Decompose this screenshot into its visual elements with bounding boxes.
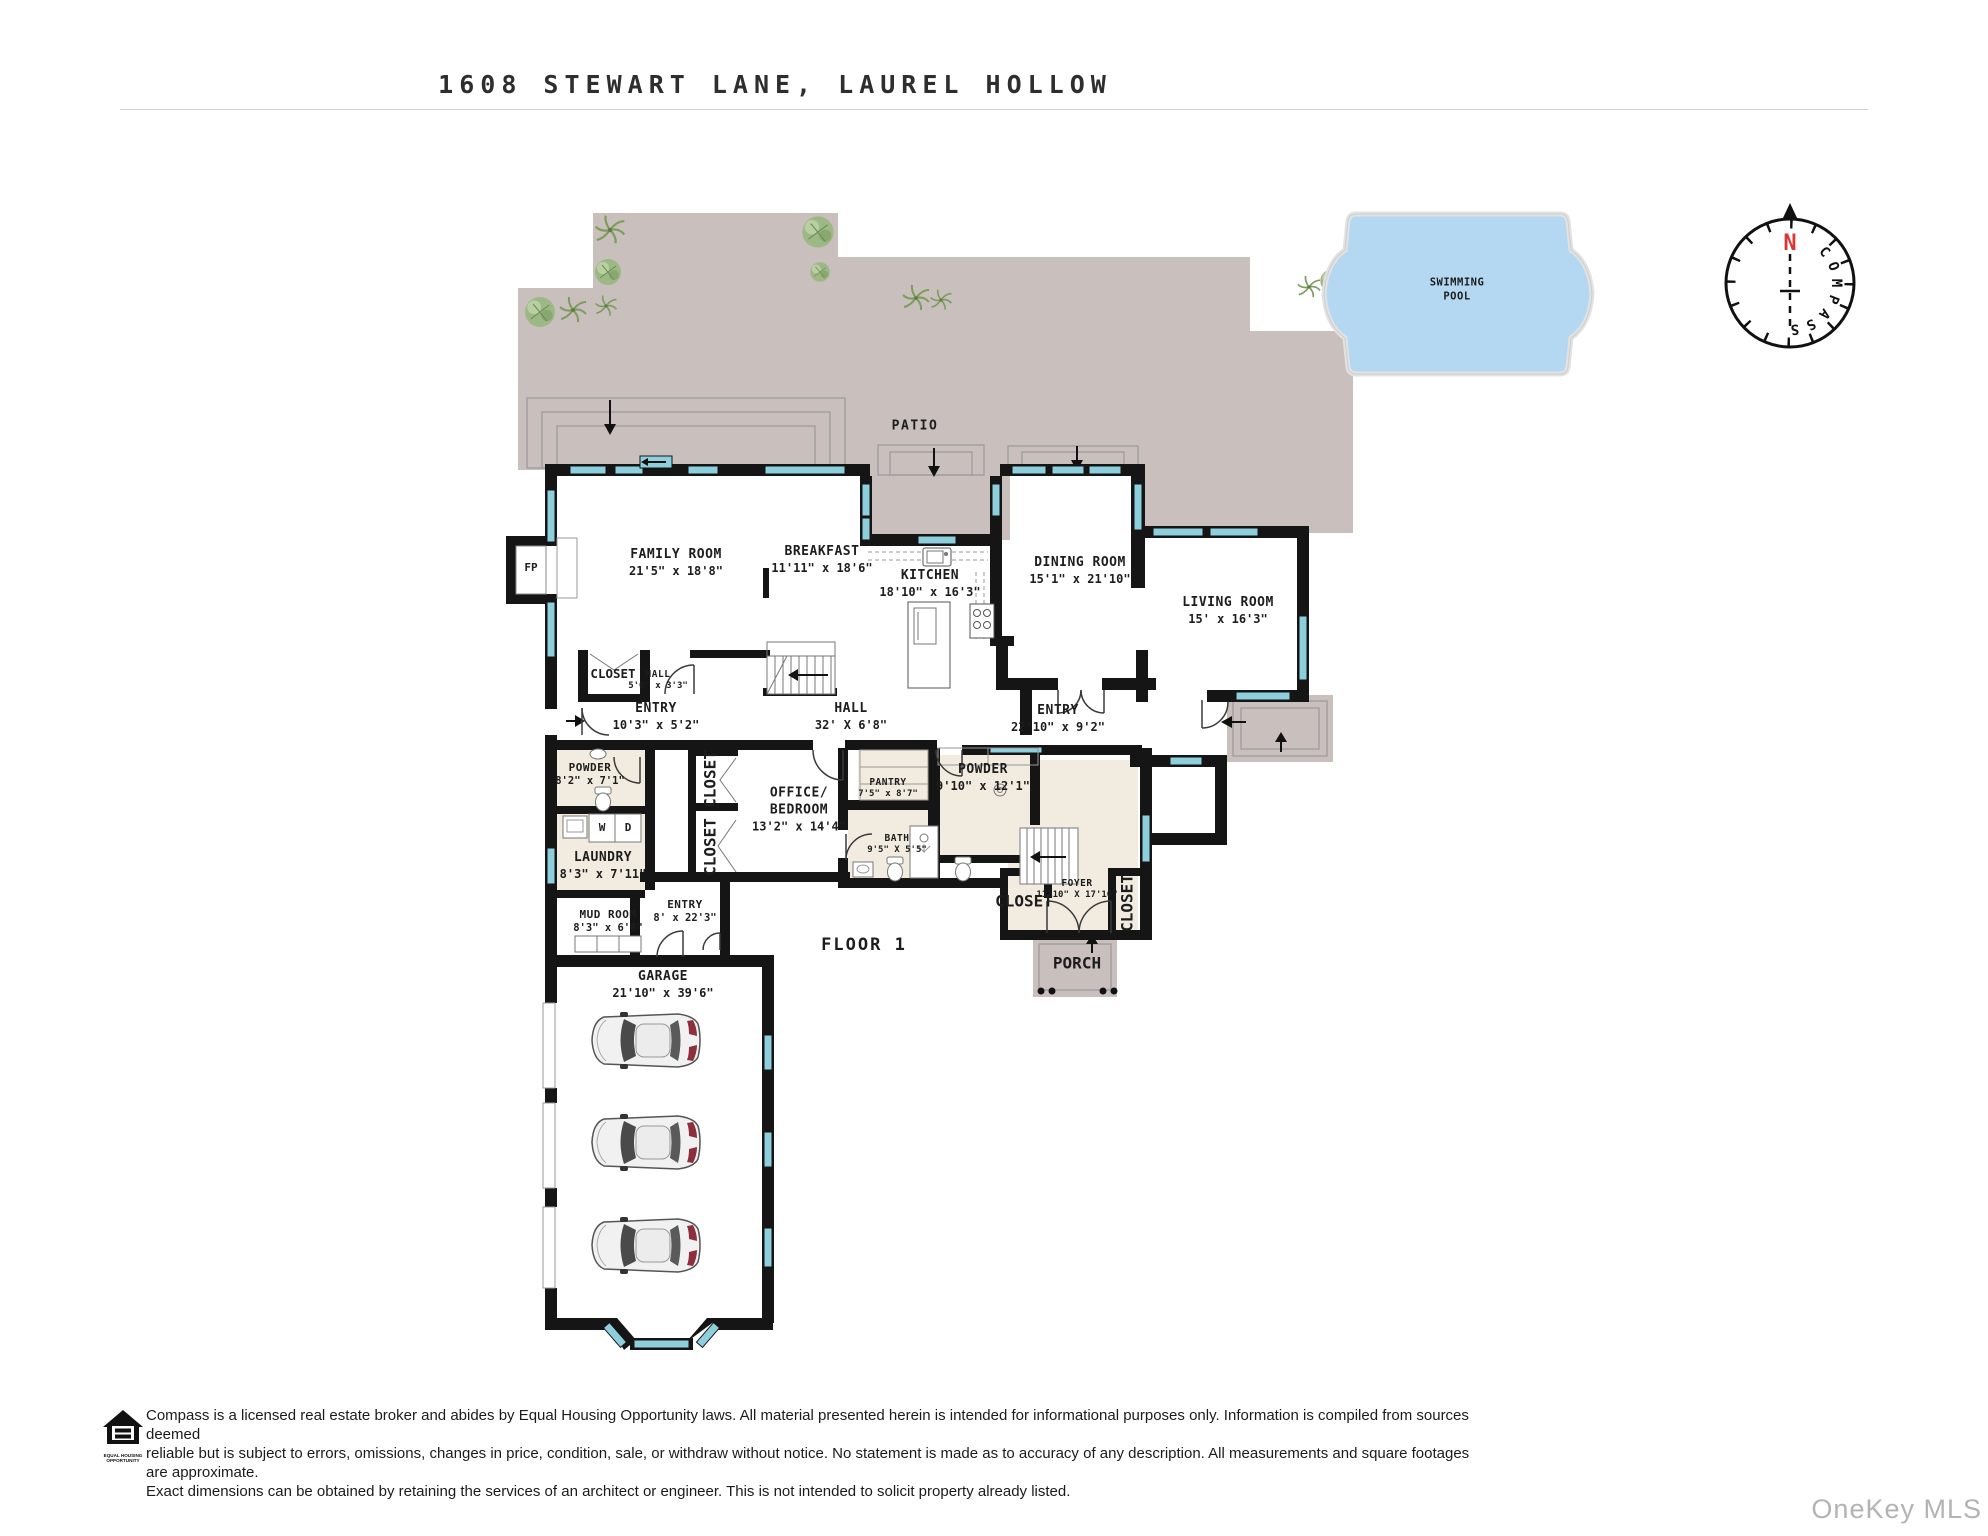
floorplan-page: 1608 STEWART LANE, LAUREL HOLLOW [0,0,1988,1536]
label-entry-right: ENTRY22'10" x 9'2" [1011,703,1105,735]
label-patio: PATIO [892,419,939,436]
label-dining-room: DINING ROOM15'1" x 21'10" [1029,555,1130,587]
label-porch: PORCH [1053,954,1101,975]
label-closet-office-lower: CLOSET [701,818,722,876]
label-powder-left: POWDER8'2" x 7'1" [555,761,625,789]
disclaimer-text: Compass is a licensed real estate broker… [146,1406,1486,1501]
label-breakfast: BREAKFAST11'11" x 18'6" [771,544,872,576]
label-fireplace: FP [524,561,537,575]
label-swimming-pool: SWIMMINGPOOL [1430,276,1485,303]
label-powder-right: POWDER9'10" x 12'1" [936,762,1030,794]
car-icons [592,1012,700,1274]
label-bath: BATH9'5" X 5'5" [867,833,927,857]
main-staircase [767,656,835,694]
label-laundry: LAUNDRY8'3" x 7'11" [560,850,647,882]
label-floor-1: FLOOR 1 [821,934,907,956]
label-family-room: FAMILY ROOM21'5" x 18'8" [629,547,723,579]
svg-text:S: S [1790,320,1800,337]
garage-doors [543,1003,555,1288]
equal-housing-logo: EQUAL HOUSING OPPORTUNITY [101,1410,145,1463]
label-entry-garage: ENTRY8' x 22'3" [653,898,716,926]
label-kitchen: KITCHEN18'10" x 16'3" [879,568,980,600]
svg-text:M: M [1828,279,1844,287]
label-mud-room: MUD ROOM8'3" x 6'8" [573,908,643,936]
label-hall-main: HALL32' X 6'8" [815,701,887,733]
label-pantry: PANTRY7'5" x 8'7" [858,777,918,801]
label-hall-small: HALL5'0" x 3'3" [628,669,688,693]
compass-north: N [1783,231,1796,256]
label-living-room: LIVING ROOM15' x 16'3" [1182,595,1274,627]
label-dryer: D [625,821,632,835]
onekey-mls-watermark: OneKey MLS [1811,1494,1982,1525]
foyer-staircase [1020,828,1078,884]
label-entry-left: ENTRY10'3" x 5'2" [613,701,700,733]
label-closet-foyer: CLOSET [995,892,1053,913]
label-closet-foyer-side: CLOSET [1118,874,1139,932]
label-washer: W [599,821,606,835]
label-office-bedroom: OFFICE/BEDROOM13'2" x 14'4" [752,785,846,834]
compass-icon: N C O M P A S S [1726,203,1854,347]
label-closet-office-upper: CLOSET [701,750,722,808]
equal-housing-house-icon [103,1410,143,1448]
label-garage: GARAGE21'10" x 39'6" [612,969,713,1001]
